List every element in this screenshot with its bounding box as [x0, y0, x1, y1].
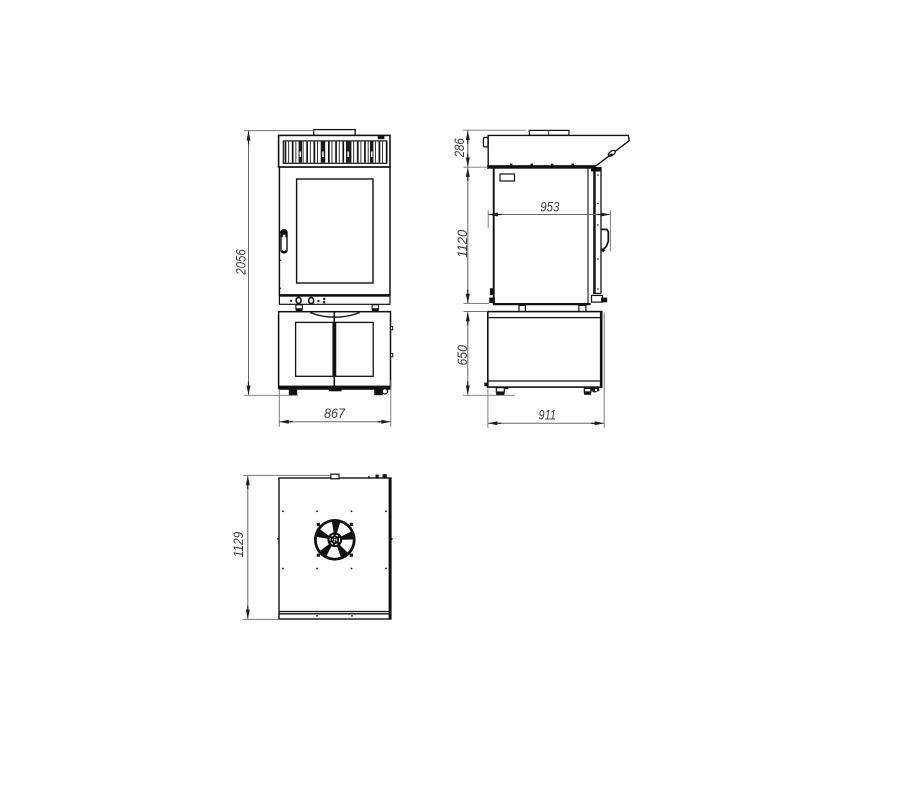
svg-text:1120: 1120 — [455, 229, 470, 258]
svg-text:2056: 2056 — [233, 249, 248, 276]
svg-text:286: 286 — [452, 138, 467, 158]
svg-text:911: 911 — [539, 408, 557, 423]
svg-text:1129: 1129 — [231, 531, 246, 557]
svg-text:867: 867 — [324, 406, 346, 421]
svg-text:953: 953 — [540, 200, 559, 215]
svg-text:650: 650 — [455, 345, 470, 366]
